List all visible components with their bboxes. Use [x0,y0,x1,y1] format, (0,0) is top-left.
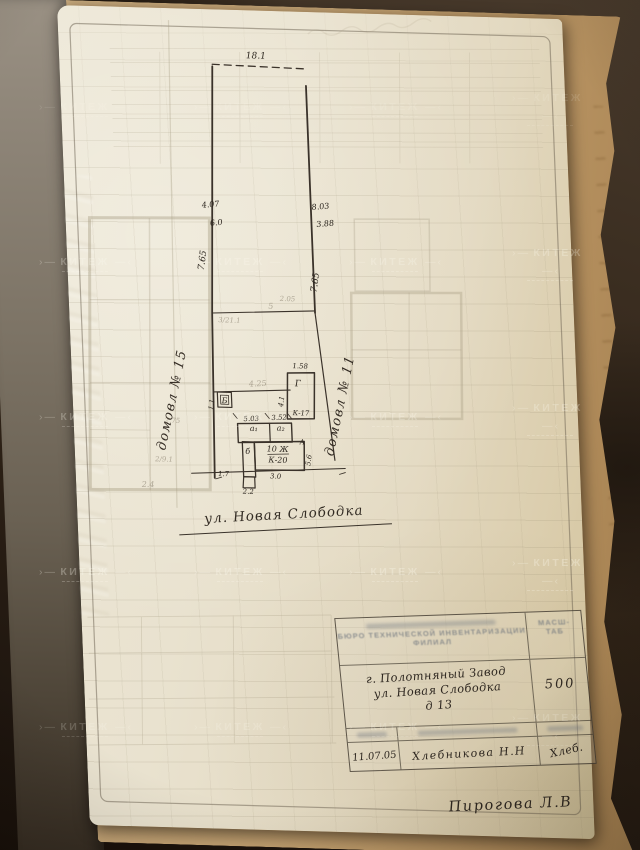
plan-label: К-20 [267,455,287,465]
date-cell: 11.07.05 [348,741,401,771]
plan-label: 8.03 [311,202,330,212]
plan-label: 6.0 [209,218,223,228]
plan-label: 3.88 [316,219,335,229]
plan-label: А [298,438,305,446]
plan-label: 4.1 [277,395,287,408]
plan-label: 4.07 [200,199,221,209]
scale-value-cell: 500 [529,658,591,722]
plan-house-label: домовл № 15 [154,348,190,452]
plan-pencil-annotation: 2.75 [164,417,181,425]
photo-background: 18.14.076.08.033.887.657.65домовл № 15до… [0,0,640,850]
faded-print-smudge [417,727,517,735]
blueprint-bottom-table [83,608,336,752]
plan-pencil-annotation: 3/21.1 [218,316,241,325]
plan-label: 1.7 [218,470,230,478]
plan-labels-layer: 18.14.076.08.033.887.657.65домовл № 15до… [123,48,364,499]
plan-label: 10 Ж [267,444,290,454]
plan-label: Б [221,396,228,405]
scale-value: 500 [532,676,588,693]
faded-print-smudge [357,732,387,738]
plan-label: 1.1 [207,398,216,411]
plan-label: а₂ [277,424,285,433]
blueprint-top-table [109,37,544,174]
plan-label: а₁ [250,424,258,433]
tracing-paper-sheet: 18.14.076.08.033.887.657.65домовл № 15до… [57,5,595,839]
title-block: БЮРО ТЕХНИЧЕСКОЙ ИНВЕНТАРИЗАЦИИ ФИЛИАЛ М… [334,610,596,772]
plan-label: 3.52 [271,414,288,422]
plan-pencil-annotation: 4.25 [247,379,267,389]
org-header-cell: БЮРО ТЕХНИЧЕСКОЙ ИНВЕНТАРИЗАЦИИ ФИЛИАЛ [335,613,529,665]
plan-label: К-17 [292,409,311,418]
plan-label: 18.1 [246,51,266,62]
plan-label: Г [294,379,302,389]
title-block-address-row: г. Полотняный Завод ул. Новая Слободка д… [340,657,591,728]
plan-label: 5.03 [243,415,260,423]
signature-cell: Хлеб. [537,735,596,765]
executor-cell: Хлебникова Н.Н [398,737,540,770]
plan-pencil-annotation: 5 [268,302,273,311]
title-block-header-row: БЮРО ТЕХНИЧЕСКОЙ ИНВЕНТАРИЗАЦИИ ФИЛИАЛ М… [335,611,585,665]
plan-label: б [245,447,250,456]
plan-label: 1.58 [292,362,308,370]
plan-label: 2.2 [242,488,255,496]
plan-pencil-annotation: 2/9.1 [154,455,173,464]
plan-label: 7.65 [197,249,210,271]
plan-left-wall [198,66,228,478]
plan-dashed-wall [212,64,304,69]
plan-pencil-annotation: 2.4 [141,480,155,489]
plan-pencil-annotation: 2.05 [279,295,296,303]
address-cell: г. Полотняный Завод ул. Новая Слободка д… [340,660,535,728]
plan-label: 7.65 [310,272,323,294]
faded-handwriting-scribble [307,15,432,38]
plan-label: 3.0 [270,472,282,480]
under-page-scuff-marks [593,106,619,526]
faded-print-smudge [546,725,582,731]
plan-label: 5.6 [304,453,313,466]
scale-label-cell: Масш- таб [525,611,585,659]
